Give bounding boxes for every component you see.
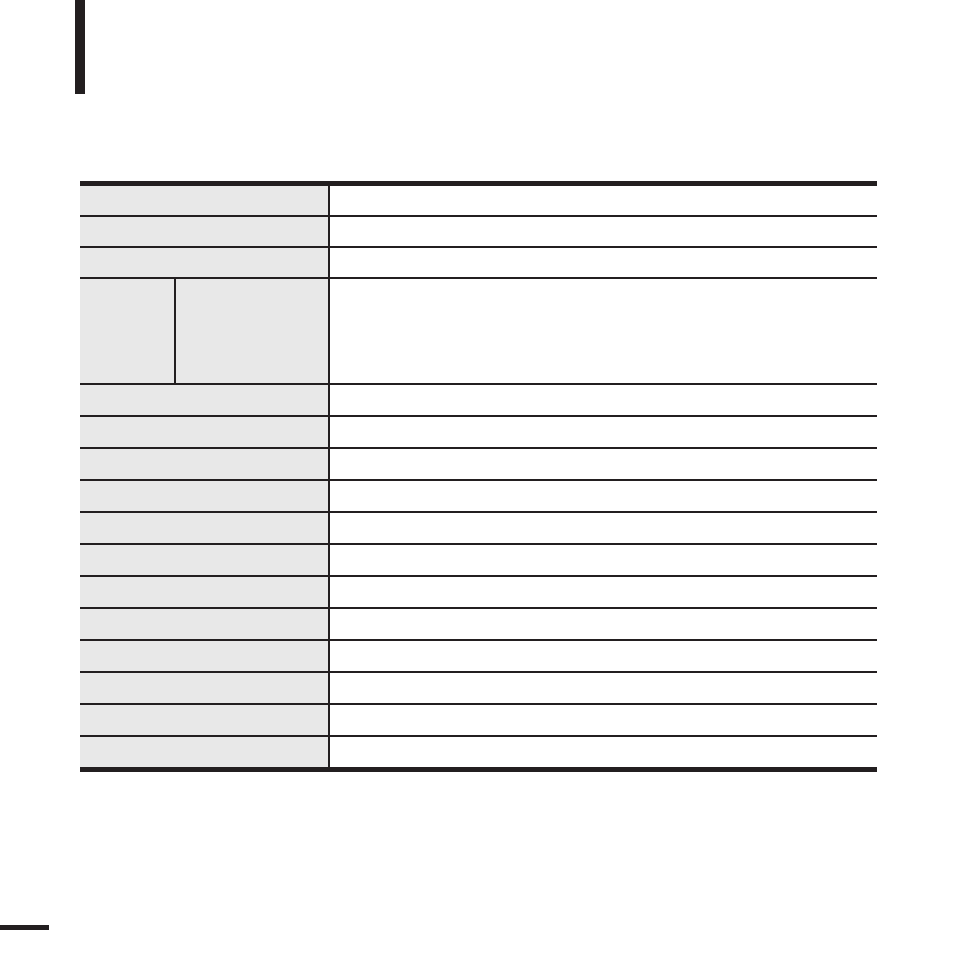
row-value-cell bbox=[330, 577, 877, 607]
row-value-text bbox=[330, 279, 877, 287]
table-row bbox=[80, 545, 877, 577]
table-row bbox=[80, 609, 877, 641]
row-label-text bbox=[80, 481, 328, 489]
row-value-cell bbox=[330, 186, 877, 215]
row-label-cell bbox=[80, 248, 330, 277]
row-label-cell bbox=[80, 545, 330, 575]
row-value-cell bbox=[330, 513, 877, 543]
spec-table-rows bbox=[80, 186, 877, 767]
row-value-cell bbox=[330, 417, 877, 447]
row-label-cell bbox=[80, 609, 330, 639]
row-label-cell bbox=[80, 481, 330, 511]
row-value-text bbox=[330, 449, 877, 457]
table-row bbox=[80, 417, 877, 449]
table-row bbox=[80, 577, 877, 609]
row-value-text bbox=[330, 577, 877, 585]
row-value-cell bbox=[330, 279, 877, 383]
row-value-text bbox=[330, 513, 877, 521]
row-label-text bbox=[80, 186, 328, 194]
row-label-cell bbox=[80, 217, 330, 246]
row-value-text bbox=[330, 641, 877, 649]
row-label-cell bbox=[80, 577, 330, 607]
row-sublabel-left-text bbox=[80, 279, 174, 287]
row-label-text bbox=[80, 737, 328, 745]
row-value-cell bbox=[330, 641, 877, 671]
row-label-cell bbox=[80, 417, 330, 447]
row-label-text bbox=[80, 641, 328, 649]
row-value-text bbox=[330, 705, 877, 713]
row-value-cell bbox=[330, 545, 877, 575]
row-value-text bbox=[330, 417, 877, 425]
row-value-text bbox=[330, 673, 877, 681]
row-label-text bbox=[80, 577, 328, 585]
row-value-cell bbox=[330, 481, 877, 511]
row-label-cell bbox=[80, 737, 330, 767]
row-label-text bbox=[80, 513, 328, 521]
row-value-cell bbox=[330, 217, 877, 246]
row-label-cell bbox=[80, 186, 330, 215]
table-row bbox=[80, 513, 877, 545]
row-label-text bbox=[80, 609, 328, 617]
row-label-text bbox=[80, 385, 328, 393]
row-label-text bbox=[80, 248, 328, 256]
row-value-text bbox=[330, 481, 877, 489]
row-value-cell bbox=[330, 609, 877, 639]
row-sublabel-left-cell bbox=[80, 279, 176, 383]
row-sublabel-right-cell bbox=[176, 279, 330, 383]
table-row bbox=[80, 673, 877, 705]
row-value-text bbox=[330, 186, 877, 194]
row-value-text bbox=[330, 248, 877, 256]
table-row bbox=[80, 385, 877, 417]
spec-table bbox=[80, 181, 877, 772]
row-value-cell bbox=[330, 449, 877, 479]
row-value-text bbox=[330, 545, 877, 553]
row-label-text bbox=[80, 449, 328, 457]
table-row bbox=[80, 641, 877, 673]
row-value-text bbox=[330, 737, 877, 745]
row-value-text bbox=[330, 385, 877, 393]
footer-edge-tab bbox=[0, 925, 49, 930]
chapter-edge-tab bbox=[75, 0, 85, 94]
row-value-cell bbox=[330, 705, 877, 735]
table-row bbox=[80, 248, 877, 279]
table-row-split bbox=[80, 279, 877, 385]
row-label-text bbox=[80, 217, 328, 225]
row-value-cell bbox=[330, 737, 877, 767]
row-label-text bbox=[80, 673, 328, 681]
table-row bbox=[80, 449, 877, 481]
table-row bbox=[80, 186, 877, 217]
table-bottom-rule bbox=[80, 767, 877, 772]
row-label-cell bbox=[80, 449, 330, 479]
row-value-cell bbox=[330, 673, 877, 703]
row-label-text bbox=[80, 705, 328, 713]
row-label-cell bbox=[80, 641, 330, 671]
manual-page: { "page": { "background_color": "#ffffff… bbox=[0, 0, 954, 954]
row-value-cell bbox=[330, 248, 877, 277]
row-label-text bbox=[80, 545, 328, 553]
row-label-cell bbox=[80, 673, 330, 703]
table-row bbox=[80, 737, 877, 767]
row-label-cell bbox=[80, 705, 330, 735]
table-row bbox=[80, 217, 877, 248]
row-label-text bbox=[80, 417, 328, 425]
row-label-cell bbox=[80, 513, 330, 543]
row-label-cell bbox=[80, 385, 330, 415]
row-value-text bbox=[330, 609, 877, 617]
row-value-text bbox=[330, 217, 877, 225]
row-value-cell bbox=[330, 385, 877, 415]
table-row bbox=[80, 705, 877, 737]
row-sublabel-right-text bbox=[176, 279, 328, 287]
table-row bbox=[80, 481, 877, 513]
